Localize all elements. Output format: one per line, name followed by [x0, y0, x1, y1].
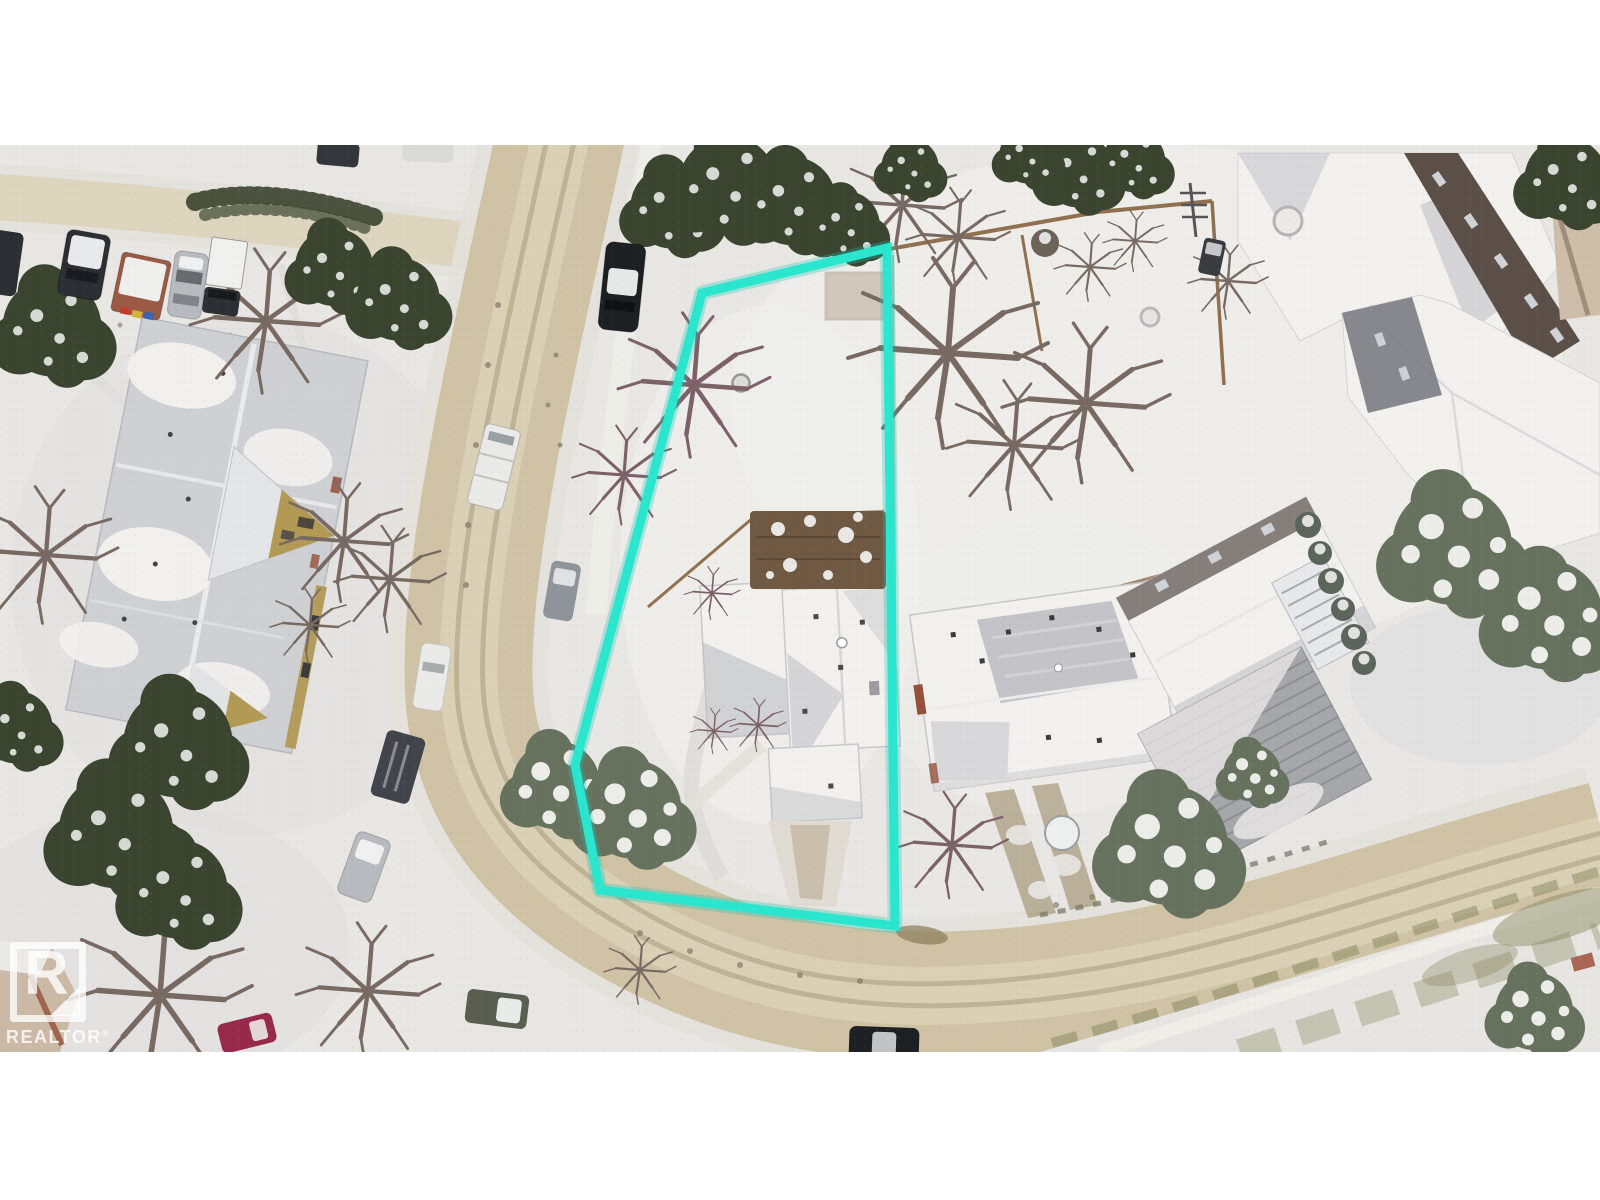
driving-car [848, 1026, 919, 1052]
listing-photo-page: R REALTOR® [0, 0, 1600, 1200]
aerial-photo-art [0, 145, 1600, 1052]
parked-pickup [598, 241, 647, 333]
top-letterbox [0, 0, 1600, 145]
round-patio-table [1274, 207, 1302, 235]
realtor-watermark: R REALTOR® [6, 942, 116, 1048]
snow-covered-shrub [1045, 816, 1079, 850]
snow-covered-car [402, 145, 455, 163]
fire-pit [1141, 308, 1159, 326]
subject-backyard-deck [750, 511, 886, 589]
bottom-letterbox [0, 1052, 1600, 1200]
realtor-logo: R [10, 942, 86, 1022]
realtor-logo-diagonal [50, 986, 80, 1016]
parked-car [316, 145, 360, 168]
aerial-photo [0, 145, 1600, 1052]
realtor-watermark-label: REALTOR® [6, 1027, 116, 1048]
garden-box [826, 273, 886, 319]
registered-trademark-symbol: ® [102, 1028, 109, 1038]
